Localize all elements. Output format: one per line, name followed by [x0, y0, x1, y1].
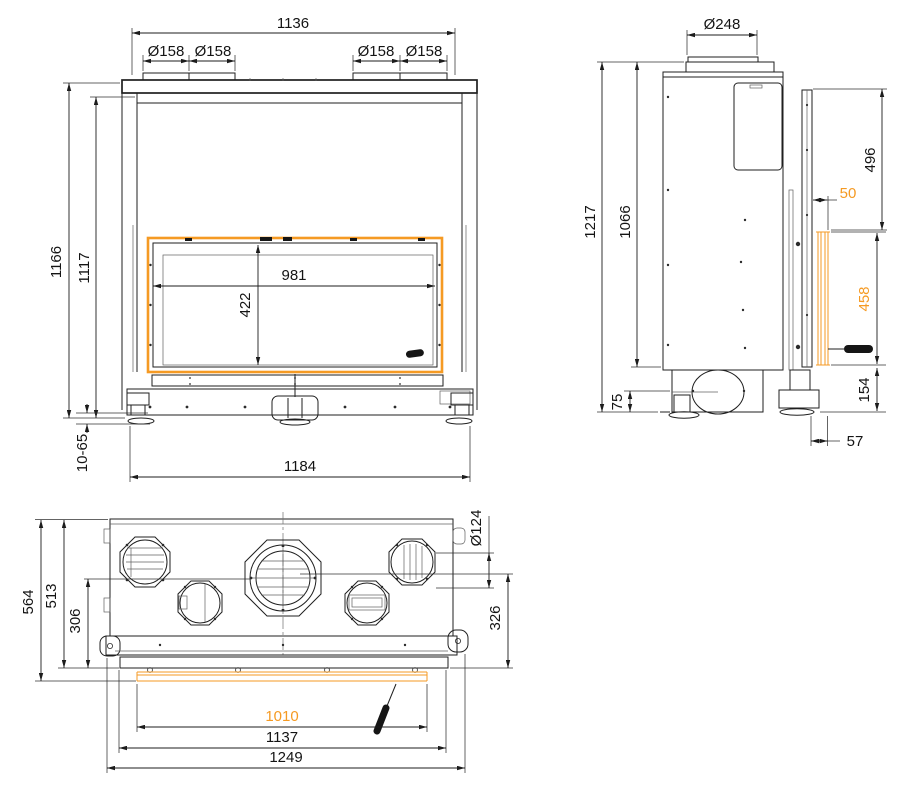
dim-label-1217: 1217: [582, 205, 599, 238]
dim-label-75: 75: [609, 394, 626, 411]
dim-label-collar-b: Ø158: [195, 43, 232, 60]
door-latch: [272, 396, 318, 420]
dim-label-496: 496: [862, 147, 879, 172]
dim-label-1117: 1117: [76, 252, 93, 283]
vent-round-left: [178, 581, 222, 625]
handle-rod-top: [387, 684, 396, 706]
dim-label-513: 513: [43, 583, 60, 608]
dim-label-248: Ø248: [704, 16, 741, 33]
dim-side-body-height: 1066: [617, 62, 661, 367]
dim-front-body-height: 1117: [76, 97, 135, 418]
dim-label-1184: 1184: [284, 458, 316, 475]
door-side-highlight: [816, 232, 830, 365]
fireplace-insert-drawing: 1136 Ø158 Ø158 Ø158 Ø158 1166 1117: [0, 0, 914, 801]
dim-label-458: 458: [856, 286, 873, 311]
dim-label-1249: 1249: [269, 749, 302, 766]
side-view: Ø248 1217 1066 496 50 458: [582, 16, 887, 450]
dim-front-base-width: 1184: [130, 426, 470, 482]
dim-label-981: 981: [281, 267, 306, 284]
door-handle-side: [844, 345, 873, 353]
control-box: [734, 83, 782, 170]
dim-label-50: 50: [840, 185, 857, 202]
dim-top-overall-depth: 564: [20, 520, 136, 682]
door-frame-highlight: [148, 238, 442, 372]
dim-side-handle-clearance: 57: [811, 416, 863, 450]
dim-label-154: 154: [856, 377, 873, 402]
door-top-highlight: [137, 672, 427, 681]
dim-front-collars-right: Ø158 Ø158: [353, 43, 447, 71]
dim-label-422: 422: [237, 292, 254, 317]
dim-label-57: 57: [847, 433, 864, 450]
technical-drawing-page: 1136 Ø158 Ø158 Ø158 Ø158 1166 1117: [0, 0, 914, 801]
vent-louvered-right-low: [345, 581, 389, 625]
dim-label-306: 306: [67, 608, 84, 633]
dim-side-bottom-section: 154: [820, 368, 886, 412]
vent-central-large: [245, 540, 321, 616]
dim-label-1137: 1137: [266, 729, 298, 746]
dim-front-glass-height: 422: [237, 245, 258, 365]
front-structure: [122, 73, 477, 425]
dim-label-564: 564: [20, 589, 37, 614]
dim-label-326: 326: [487, 605, 504, 630]
dim-label-collar-d: Ø158: [406, 43, 443, 60]
dim-side-flue-dia: Ø248: [687, 16, 757, 55]
dim-front-glass-width: 981: [153, 267, 435, 286]
vent-louvered-right-up: [389, 539, 435, 585]
dim-label-1166: 1166: [48, 246, 65, 278]
dim-label-1066: 1066: [617, 205, 634, 238]
top-structure: [100, 512, 468, 731]
dim-label-124: Ø124: [468, 510, 485, 547]
dim-side-base-height: 75: [609, 391, 670, 412]
dim-front-collars-left: Ø158 Ø158: [143, 43, 235, 71]
side-structure: [660, 57, 873, 418]
dim-front-leveling-range: 10-65: [74, 404, 150, 472]
dim-label-1136: 1136: [277, 15, 309, 32]
door-handle-top: [377, 708, 386, 731]
dim-side-door-offset: 50: [813, 185, 856, 230]
door-handle-front: [406, 349, 425, 358]
vent-louvered-left: [120, 537, 170, 587]
dim-label-collar-c: Ø158: [358, 43, 395, 60]
dim-top-vent-dia: Ø124: [436, 510, 494, 588]
dim-front-overall-height: 1166: [48, 83, 125, 418]
top-view: 564 513 306 Ø124 326 1010: [20, 510, 513, 773]
front-view: 1136 Ø158 Ø158 Ø158 Ø158 1166 1117: [48, 15, 477, 482]
dim-side-top-section: 496: [813, 89, 887, 230]
dim-label-collar-a: Ø158: [148, 43, 185, 60]
dim-label-1010: 1010: [265, 708, 298, 725]
dim-label-10-65: 10-65: [74, 434, 91, 472]
